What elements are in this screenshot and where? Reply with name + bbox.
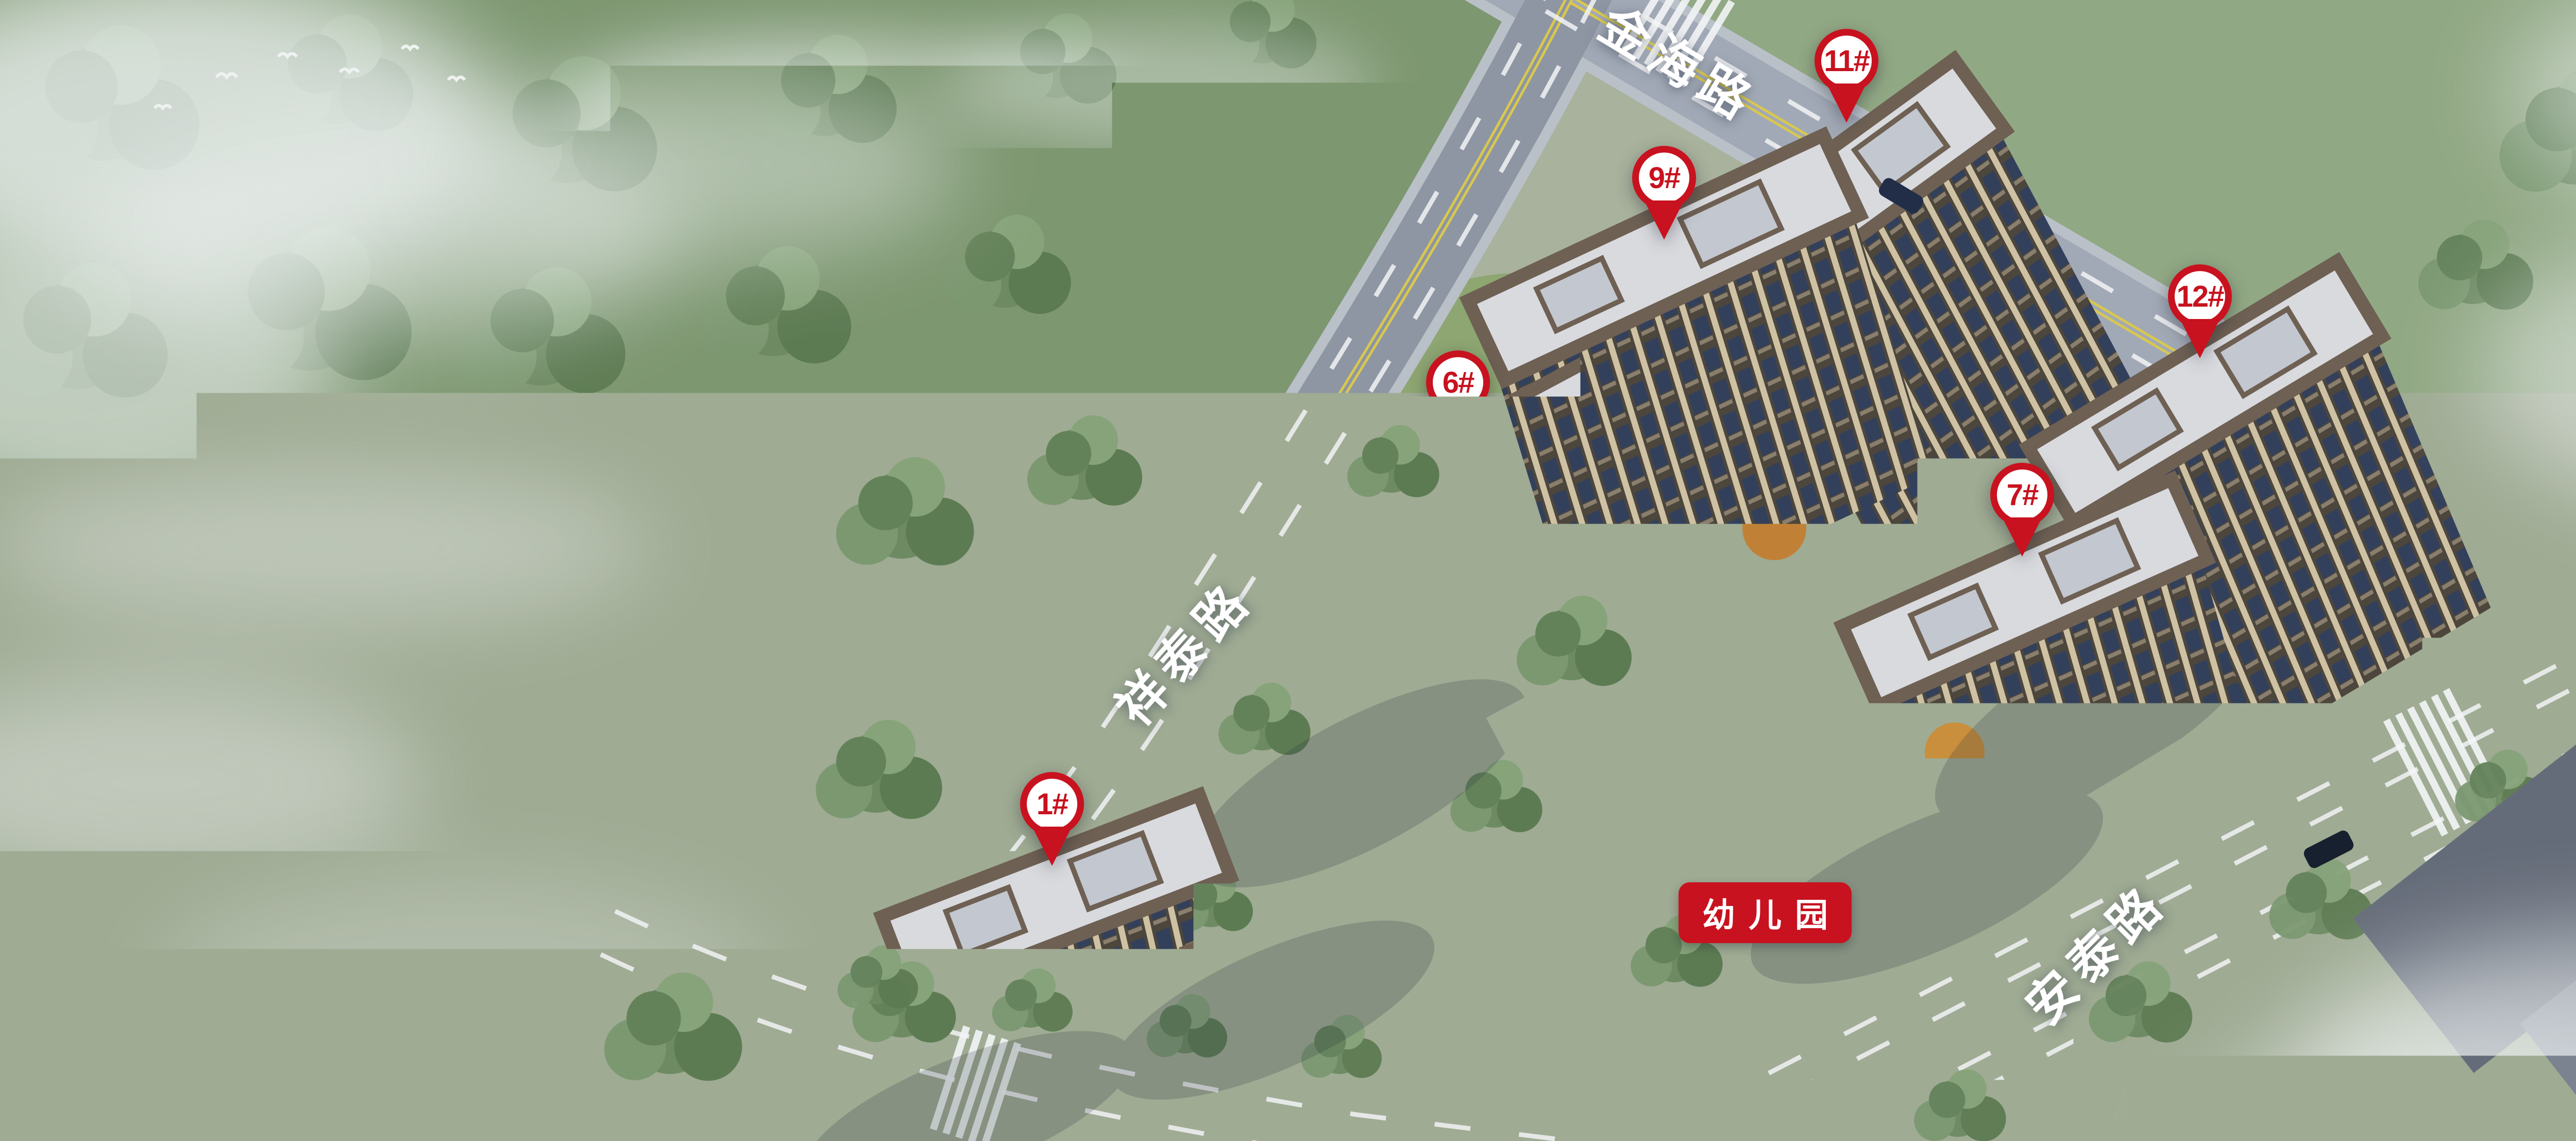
render-canvas — [0, 0, 2576, 1141]
marker-label: 2# — [1528, 881, 1560, 915]
marker-label: 9# — [1649, 161, 1680, 195]
marker-label: 4# — [1347, 624, 1378, 658]
marker-tail-icon — [1338, 663, 1386, 702]
marker-tail-icon — [2176, 319, 2224, 358]
marker-circle: 6# — [1426, 350, 1490, 414]
marker-label: 7# — [2007, 478, 2038, 512]
marker-pin-7: 7# — [1990, 463, 2054, 557]
marker-label: 11# — [1824, 44, 1869, 78]
kindergarten-badge: 幼儿园 — [1679, 882, 1852, 943]
marker-pin-1: 1# — [1020, 772, 1084, 866]
marker-tail-icon — [1434, 405, 1482, 444]
marker-tail-icon — [1998, 517, 2046, 557]
marker-circle: 2# — [1512, 866, 1575, 930]
aerial-birdseye-render: 金海路 祥泰路 安泰路 华泰路 11# 9# 12# 6# 7# 4# 1# 2… — [0, 0, 2576, 1141]
marker-circle: 1# — [1020, 772, 1084, 836]
marker-pin-11: 11# — [1815, 29, 1878, 123]
kindergarten-label: 幼儿园 — [1702, 889, 1841, 936]
marker-pin-12: 12# — [2168, 264, 2232, 358]
marker-tail-icon — [1640, 200, 1688, 240]
marker-circle: 7# — [1990, 463, 2054, 527]
marker-circle: 9# — [1632, 146, 1696, 210]
marker-tail-icon — [1520, 920, 1567, 960]
marker-tail-icon — [1823, 83, 1870, 123]
marker-circle: 4# — [1330, 609, 1394, 673]
marker-pin-6: 6# — [1426, 350, 1490, 444]
marker-label: 12# — [2177, 279, 2224, 314]
marker-pin-4: 4# — [1330, 609, 1394, 702]
marker-label: 1# — [1037, 787, 1068, 821]
marker-circle: 11# — [1815, 29, 1878, 93]
marker-pin-2: 2# — [1512, 866, 1575, 960]
marker-pin-9: 9# — [1632, 146, 1696, 240]
marker-label: 6# — [1443, 365, 1474, 400]
marker-circle: 12# — [2168, 264, 2232, 328]
marker-tail-icon — [1028, 827, 1076, 866]
